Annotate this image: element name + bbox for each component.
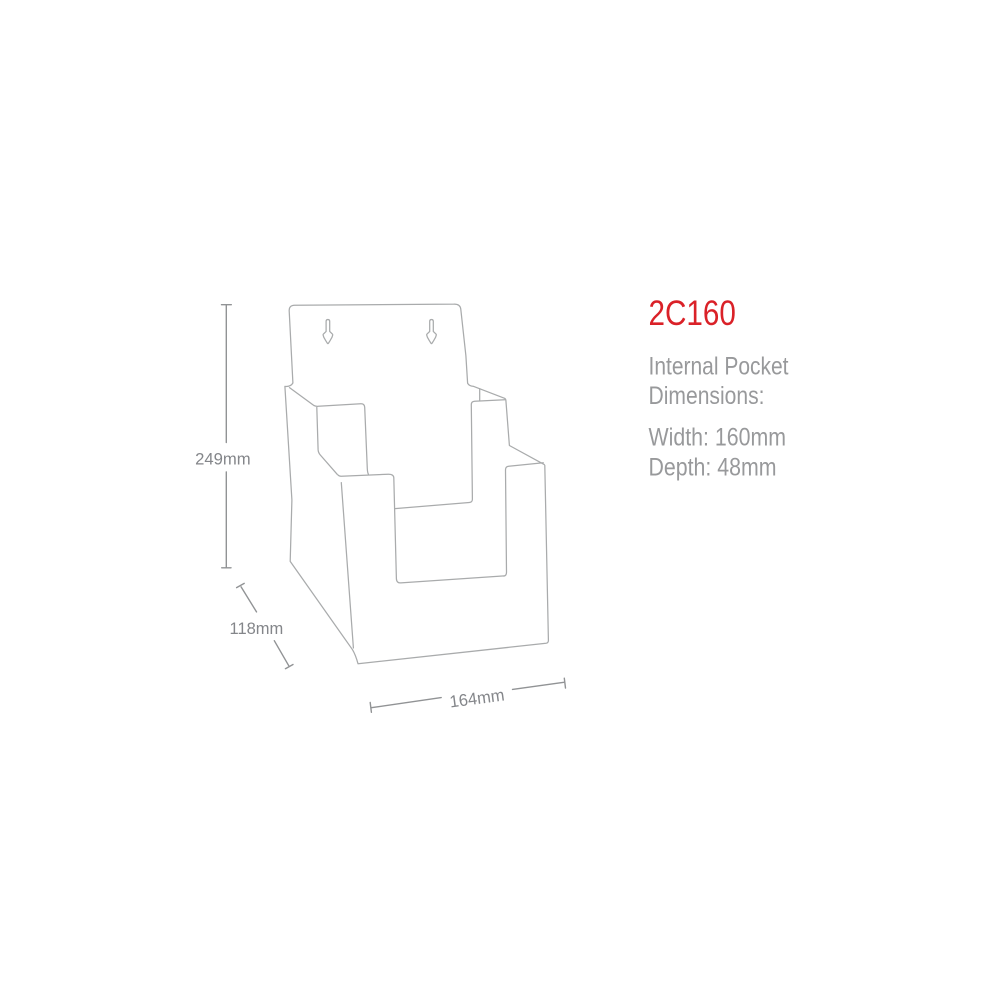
svg-text:Depth: 48mm: Depth: 48mm bbox=[649, 453, 777, 481]
svg-text:Dimensions:: Dimensions: bbox=[649, 382, 765, 410]
svg-text:Internal Pocket: Internal Pocket bbox=[649, 353, 789, 381]
svg-text:118mm: 118mm bbox=[230, 619, 284, 638]
svg-text:2C160: 2C160 bbox=[649, 294, 736, 333]
svg-text:249mm: 249mm bbox=[195, 450, 251, 469]
svg-text:Width: 160mm: Width: 160mm bbox=[649, 424, 787, 452]
